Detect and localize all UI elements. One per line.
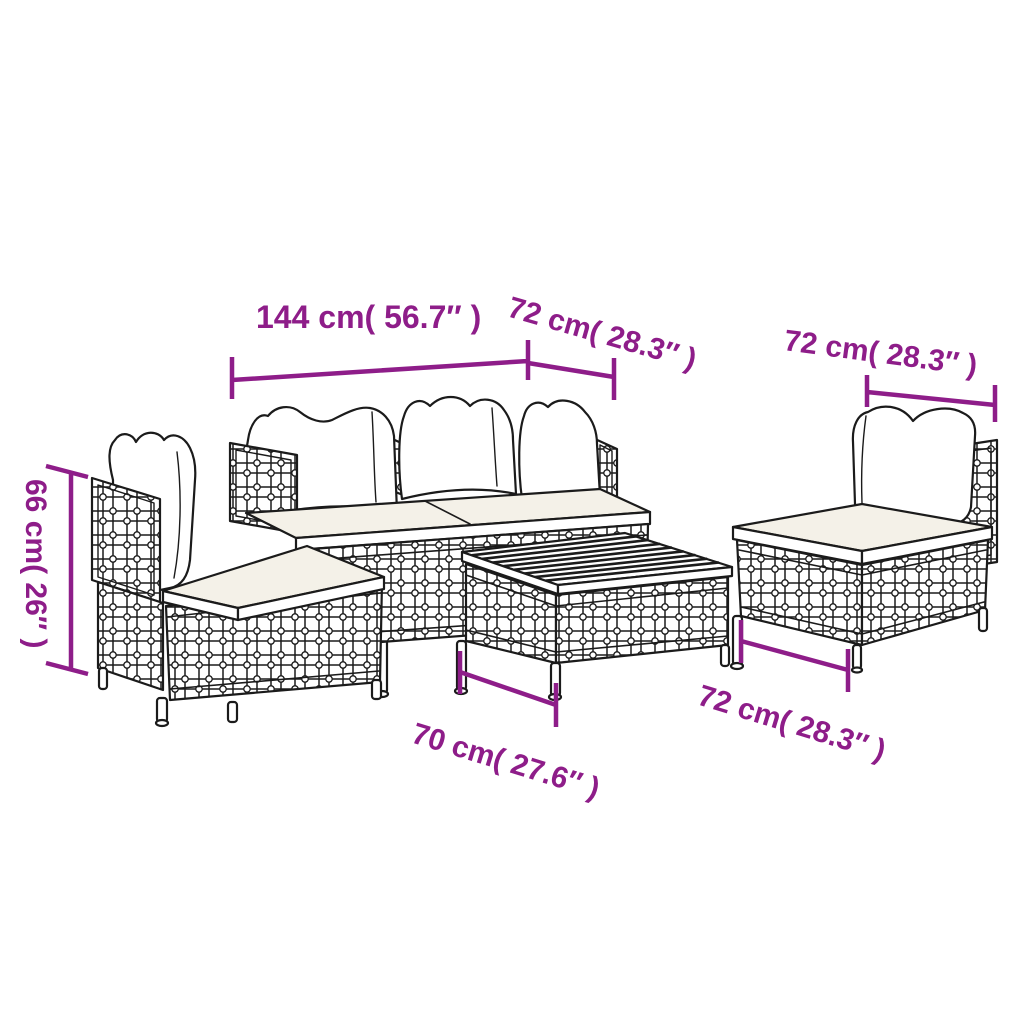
left-leg xyxy=(157,698,167,722)
left-leg xyxy=(228,702,237,722)
left-leg xyxy=(99,668,107,689)
left-leg-foot xyxy=(156,720,168,726)
dim-label-sofa-width: 144 cm( 56.7″ ) xyxy=(256,299,481,335)
dimension-diagram: 144 cm( 56.7″ ) 72 cm( 28.3″ ) 72 cm( 28… xyxy=(0,0,1024,1024)
sofa-back-cushion-right xyxy=(519,401,600,499)
right-leg-foot xyxy=(852,668,862,673)
left-leg xyxy=(372,680,381,699)
table-leg xyxy=(721,645,729,666)
right-leg-foot xyxy=(731,663,743,669)
right-leg xyxy=(979,608,987,631)
sofa-back-cushion-middle xyxy=(399,397,516,499)
right-leg xyxy=(853,645,861,669)
dim-label-height: 66 cm( 26″ ) xyxy=(19,479,52,648)
